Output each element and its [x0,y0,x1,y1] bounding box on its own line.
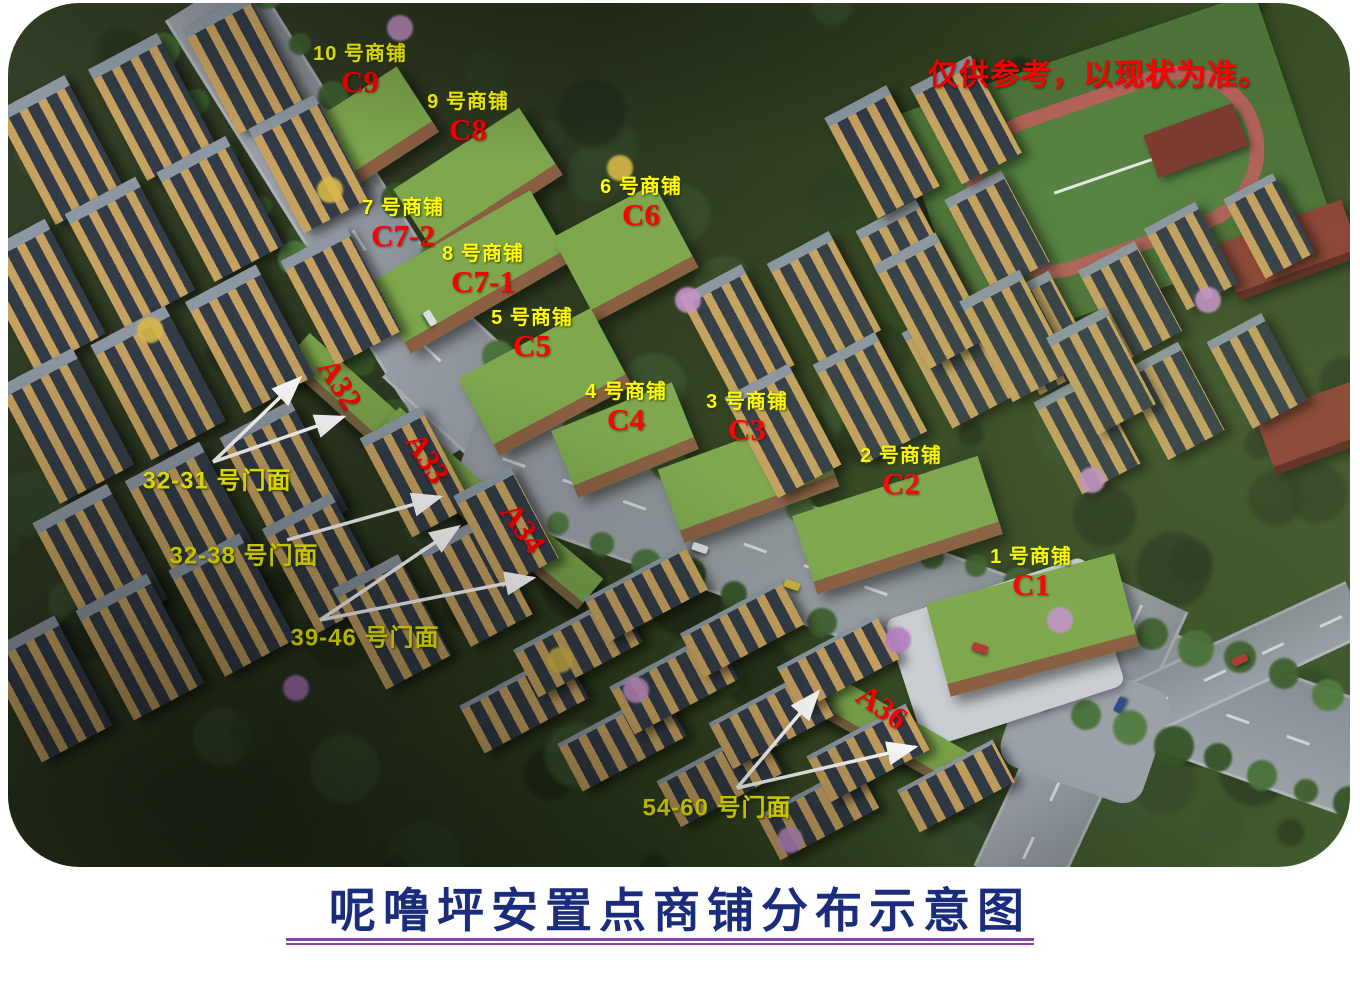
shop-name-text: 8 号商铺 [442,237,524,266]
storefront-label-54-60: 54-60 号门面 [642,788,791,823]
disclaimer-note: 仅供参考，以现状为准。 [928,50,1269,94]
shop-code-text: C2 [860,468,942,501]
shop-name-text: 6 号商铺 [600,170,682,199]
title-underline [286,938,1034,945]
shop-code-text: C5 [491,330,573,363]
shop-label-1: 1 号商铺 C1 [990,540,1072,602]
building-code-a34: A34 [493,496,553,560]
shop-name-text: 9 号商铺 [427,85,509,114]
shop-label-7: 7 号商铺 C7-2 [362,191,444,253]
map-title: 呢噜坪安置点商铺分布示意图 [329,872,1031,941]
shop-code-text: C1 [990,569,1072,602]
shop-name-text: 3 号商铺 [706,385,788,414]
building-code-a36: A36 [850,677,914,737]
shop-code-text: C7-1 [442,266,524,299]
shop-name-text: 10 号商铺 [313,37,407,66]
shop-code-text: C6 [600,199,682,232]
aerial-render-photo: 10 号商铺 C9 9 号商铺 C8 7 号商铺 C7-2 6 号商铺 C6 8… [8,3,1350,867]
shop-name-text: 5 号商铺 [491,301,573,330]
shop-label-4: 4 号商铺 C4 [585,375,667,437]
shop-name-text: 7 号商铺 [362,191,444,220]
annotation-labels: 10 号商铺 C9 9 号商铺 C8 7 号商铺 C7-2 6 号商铺 C6 8… [8,3,1350,867]
shop-name-text: 2 号商铺 [860,439,942,468]
shop-label-5: 5 号商铺 C5 [491,301,573,363]
building-code-a32: A32 [310,352,369,416]
storefront-label-32-38: 32-38 号门面 [169,536,318,571]
storefront-label-32-31: 32-31 号门面 [142,461,291,496]
shop-code-text: C3 [706,414,788,447]
building-code-a33: A33 [397,426,456,490]
shop-code-text: C9 [313,66,407,99]
shop-code-text: C4 [585,404,667,437]
shop-code-text: C7-2 [362,220,444,253]
shop-label-9: 9 号商铺 C8 [427,85,509,147]
shop-label-6: 6 号商铺 C6 [600,170,682,232]
storefront-label-39-46: 39-46 号门面 [290,618,439,653]
shop-name-text: 1 号商铺 [990,540,1072,569]
shop-label-10: 10 号商铺 C9 [313,37,407,99]
page-root: 10 号商铺 C9 9 号商铺 C8 7 号商铺 C7-2 6 号商铺 C6 8… [0,0,1360,983]
shop-label-2: 2 号商铺 C2 [860,439,942,501]
shop-label-3: 3 号商铺 C3 [706,385,788,447]
shop-name-text: 4 号商铺 [585,375,667,404]
shop-label-8: 8 号商铺 C7-1 [442,237,524,299]
caption-area: 呢噜坪安置点商铺分布示意图 [0,872,1360,941]
shop-code-text: C8 [427,114,509,147]
